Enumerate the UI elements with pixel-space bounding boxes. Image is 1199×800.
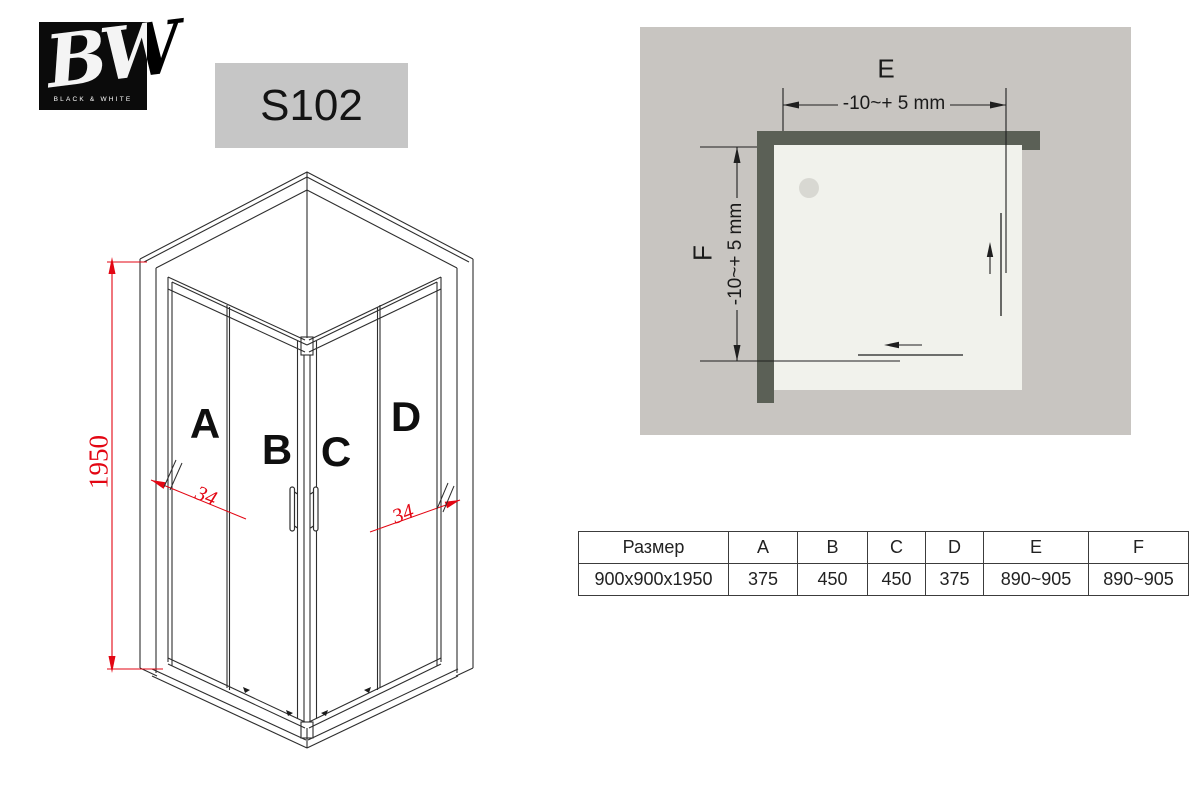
iso-door-rollers <box>243 687 371 716</box>
model-badge: S102 <box>215 63 408 148</box>
brand-logo-initials: BW <box>41 0 191 108</box>
iso-panel-label-b: B <box>262 426 292 474</box>
iso-height-dim-label: 1950 <box>84 435 115 489</box>
spec-value-e: 890~905 <box>984 564 1089 596</box>
plan-drain-icon <box>799 178 819 198</box>
iso-angle-dimension-right-arrow <box>445 500 460 508</box>
spec-table: Размер A B C D E F 900x900x1950 375 450 … <box>578 531 1189 596</box>
iso-angle-dim-right-label: 34 <box>389 499 418 530</box>
spec-header-size: Размер <box>579 532 729 564</box>
iso-angle-right-ticks <box>437 483 454 512</box>
spec-table-value-row: 900x900x1950 375 450 450 375 890~905 890… <box>579 564 1189 596</box>
spec-header-b: B <box>798 532 868 564</box>
spec-value-f: 890~905 <box>1089 564 1189 596</box>
spec-value-d: 375 <box>926 564 984 596</box>
spec-header-c: C <box>868 532 926 564</box>
spec-value-a: 375 <box>729 564 798 596</box>
iso-angle-left-ticks <box>164 460 182 490</box>
plan-dim-e-label: -10~+ 5 mm <box>843 93 945 115</box>
spec-sheet-page: BW BLACK & WHITE S102 <box>0 0 1199 800</box>
plan-label-e: E <box>877 54 894 85</box>
spec-header-e: E <box>984 532 1089 564</box>
spec-value-b: 450 <box>798 564 868 596</box>
plan-wall-top <box>757 131 1040 145</box>
spec-header-a: A <box>729 532 798 564</box>
plan-dim-f-label: -10~+ 5 mm <box>725 203 747 305</box>
iso-panel-label-a: A <box>190 400 220 448</box>
spec-header-f: F <box>1089 532 1189 564</box>
iso-panel-label-d: D <box>391 393 421 441</box>
plan-wall-top-end-step <box>1022 145 1040 150</box>
plan-wall-left <box>757 145 774 403</box>
spec-value-c: 450 <box>868 564 926 596</box>
iso-angle-dimension-left-arrow <box>151 480 166 489</box>
iso-door-handles <box>290 487 318 531</box>
spec-table-header-row: Размер A B C D E F <box>579 532 1189 564</box>
iso-height-dimension <box>107 262 163 669</box>
spec-value-size: 900x900x1950 <box>579 564 729 596</box>
brand-logo-caption: BLACK & WHITE <box>41 96 145 103</box>
spec-header-d: D <box>926 532 984 564</box>
iso-angle-dim-left-label: 34 <box>192 480 221 511</box>
plan-label-f: F <box>688 245 719 261</box>
iso-panel-label-c: C <box>321 428 351 476</box>
